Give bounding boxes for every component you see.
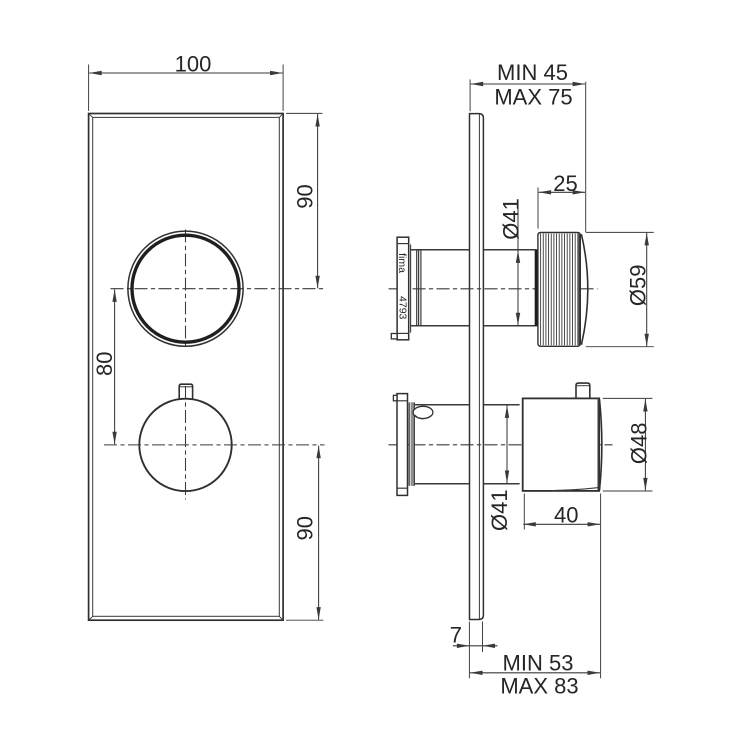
svg-text:90: 90 — [293, 184, 318, 208]
svg-text:7: 7 — [450, 623, 462, 648]
svg-text:80: 80 — [92, 352, 117, 376]
svg-text:Ø59: Ø59 — [626, 265, 651, 307]
svg-text:fima: fima — [396, 253, 408, 273]
svg-text:Ø41: Ø41 — [498, 198, 523, 240]
svg-text:MIN 53: MIN 53 — [503, 650, 574, 675]
svg-text:MAX 83: MAX 83 — [500, 673, 578, 698]
svg-text:4793: 4793 — [397, 296, 409, 320]
svg-text:MIN 45: MIN 45 — [497, 60, 568, 85]
svg-text:25: 25 — [553, 171, 577, 196]
svg-text:Ø48: Ø48 — [626, 423, 651, 465]
svg-text:100: 100 — [175, 51, 212, 76]
svg-text:MAX 75: MAX 75 — [494, 85, 572, 110]
svg-text:Ø41: Ø41 — [487, 489, 512, 531]
svg-text:40: 40 — [554, 502, 578, 527]
svg-text:90: 90 — [293, 516, 318, 540]
